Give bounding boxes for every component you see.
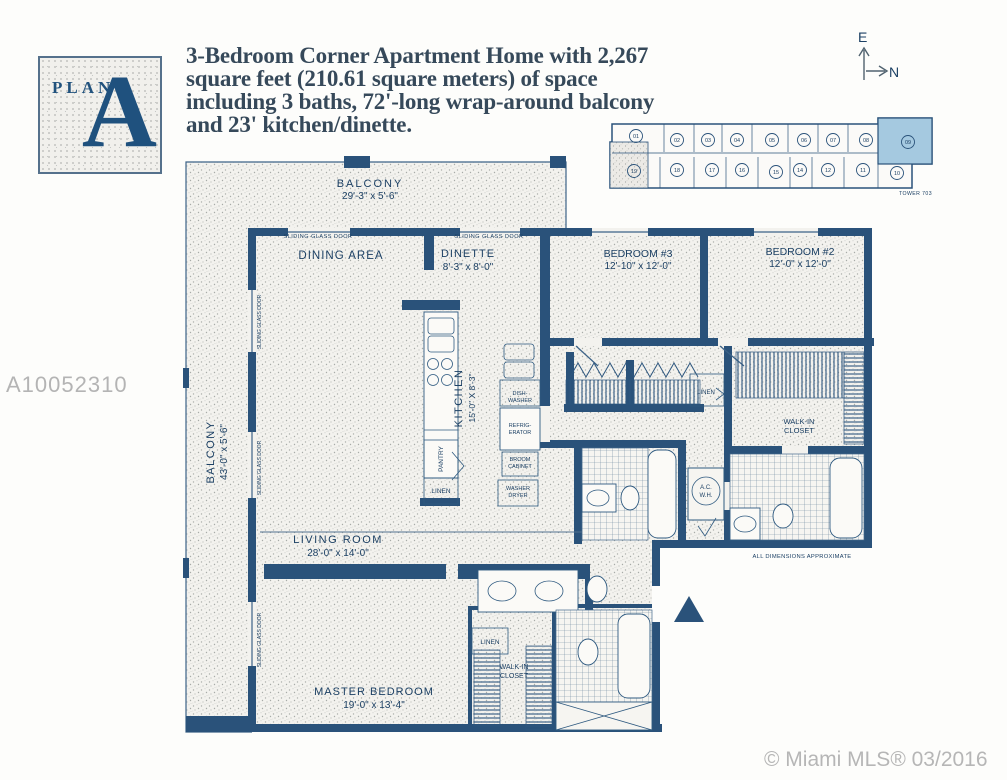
master-walkin-label-1: WALK-IN <box>500 664 529 671</box>
hall-linen-label: LINEN <box>697 390 715 396</box>
kitchen-linen-label: LINEN <box>431 488 450 495</box>
sliding-glass-door-label-4: SLIDING GLASS DOOR <box>257 440 263 495</box>
keyplan-unit-08: 08 <box>863 138 869 144</box>
master-bedroom-label: MASTER BEDROOM <box>314 686 434 698</box>
balcony-top-label: BALCONY <box>337 178 404 190</box>
sliding-glass-door-label-5: SLIDING GLASS DOOR <box>257 612 263 667</box>
bathtub <box>618 614 650 698</box>
floorplan-drawing: BALCONY 29'-3" x 5'-6" SLIDING GLASS DOO… <box>180 150 950 745</box>
compass-icon: E N <box>838 22 910 88</box>
master-walkin-label-2: CLOSET <box>500 673 529 680</box>
bedroom2-dims: 12'-0" x 12'-0" <box>769 259 831 270</box>
plan-a-badge: PLAN A <box>38 56 162 174</box>
description-line-2: square feet (210.61 square meters) of sp… <box>186 67 746 90</box>
keyplan-unit-09: 09 <box>905 140 911 146</box>
sliding-glass-door-label-2: SLIDING GLASS DOOR <box>455 234 524 240</box>
plan-letter-a: A <box>82 60 157 164</box>
balcony-left-dims: 43'-0" x 5'-6" <box>219 424 230 480</box>
dishwasher-label-1: DISH- <box>513 391 528 397</box>
kitchen-dims: 15'-0" X 8'-3" <box>467 374 477 423</box>
keyplan-unit-05: 05 <box>769 138 775 144</box>
pantry-label: PANTRY <box>438 445 445 471</box>
bathtub <box>830 458 862 538</box>
keyplan-unit-01: 01 <box>633 134 639 140</box>
dishwasher-label-2: WASHER <box>508 398 532 404</box>
bedroom2-label: BEDROOM #2 <box>766 246 835 258</box>
bedroom3-dims: 12'-10" x 12'-0" <box>604 261 672 272</box>
keyplan-unit-03: 03 <box>705 138 711 144</box>
toilet <box>587 576 607 602</box>
balcony-left-label: BALCONY <box>205 420 217 483</box>
kitchen-label: KITCHEN <box>453 369 465 428</box>
copyright-notice: © Miami MLS® 03/2016 <box>764 748 988 772</box>
dinette-dims: 8'-3" x 8'-0" <box>443 262 494 273</box>
scanned-floorplan-page: PLAN A 3-Bedroom Corner Apartment Home w… <box>0 0 1007 780</box>
broom-cabinet-label-2: CABINET <box>508 464 532 470</box>
bathtub <box>648 450 676 538</box>
broom-cabinet-label-1: BROOM <box>510 457 531 463</box>
description-line-1: 3-Bedroom Corner Apartment Home with 2,2… <box>186 44 746 67</box>
balcony-top-dims: 29'-3" x 5'-6" <box>342 191 398 202</box>
description-line-3: including 3 baths, 72'-long wrap-around … <box>186 90 746 113</box>
sliding-glass-door-label-3: SLIDING GLASS DOOR <box>257 294 263 349</box>
entry-door-marker <box>674 596 704 622</box>
wh-label: W.H. <box>700 493 713 499</box>
keyplan-unit-02: 02 <box>674 138 680 144</box>
walkin-closet-right-label-2: CLOSET <box>784 426 814 435</box>
toilet <box>578 639 598 665</box>
toilet <box>773 504 793 528</box>
washer-dryer-label-1: WASHER <box>506 486 530 492</box>
toilet <box>621 486 639 510</box>
refrigerator-label-1: REFRIG- <box>509 423 532 429</box>
refrigerator-label-2: ERATOR <box>509 430 531 436</box>
washer-dryer-label-2: DRYER <box>508 493 527 499</box>
compass-east-label: E <box>858 29 867 45</box>
compass-north-label: N <box>889 64 899 80</box>
sliding-glass-door-label-1: SLIDING GLASS DOOR <box>284 234 353 240</box>
dining-area-label: DINING AREA <box>298 250 383 262</box>
living-room-label: LIVING ROOM <box>293 534 383 546</box>
bedroom3-label: BEDROOM #3 <box>604 248 673 260</box>
dimensions-note: ALL DIMENSIONS APPROXIMATE <box>753 554 852 560</box>
walkin-closet-right-label-1: WALK-IN <box>784 417 815 426</box>
hall-bathroom <box>582 448 676 540</box>
mls-watermark: A10052310 <box>6 372 128 398</box>
keyplan-unit-04: 04 <box>734 138 740 144</box>
keyplan-unit-06: 06 <box>801 138 807 144</box>
ac-label: A.C. <box>700 485 712 491</box>
refrigerator <box>500 408 540 450</box>
master-linen-label: LINEN <box>480 639 499 646</box>
dinette-label: DINETTE <box>441 248 495 260</box>
bedroom2-bathroom <box>730 454 864 540</box>
living-room-dims: 28'-0" x 14'-0" <box>307 548 369 559</box>
keyplan-unit-07: 07 <box>830 138 836 144</box>
master-bedroom-dims: 19'-0" x 13'-4" <box>343 700 405 711</box>
